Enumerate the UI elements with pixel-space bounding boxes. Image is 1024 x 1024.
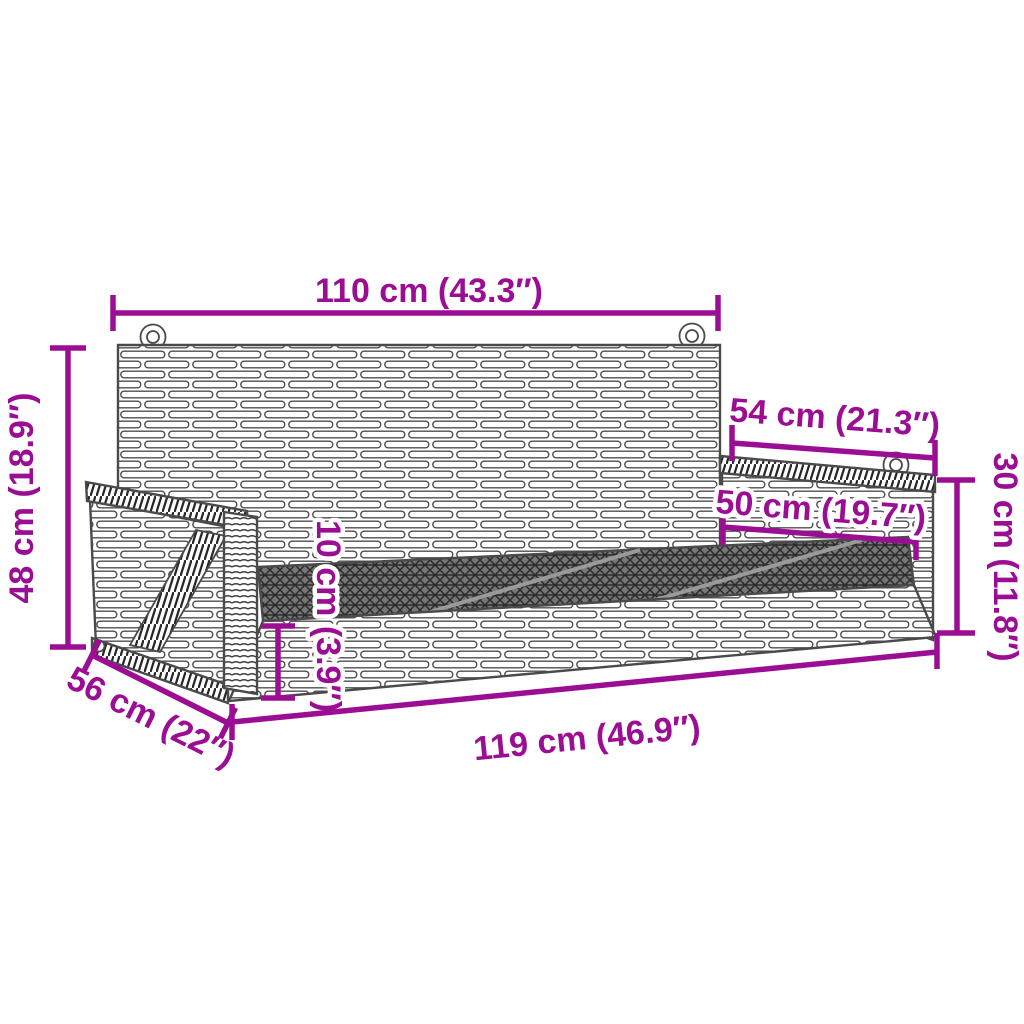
dimension-top-width: 110 cm (43.3″) <box>113 272 718 331</box>
dimension-label-back-height: 48 cm (18.9″) <box>3 393 41 604</box>
dimension-line <box>50 348 86 647</box>
dimension-back-height: 48 cm (18.9″) <box>3 348 86 647</box>
left-armrest-front-post <box>224 512 257 694</box>
dimension-label-armrest-height: 30 cm (11.8″) <box>986 452 1024 661</box>
dimension-label-top-width: 110 cm (43.3″) <box>315 272 543 310</box>
dimension-label-seat-width: 119 cm (46.9″) <box>472 708 703 768</box>
dimension-label-arm-depth: 54 cm (21.3″) <box>728 391 941 444</box>
dimension-armrest-height: 30 cm (11.8″) <box>937 452 1024 661</box>
swing-bench-drawing: 110 cm (43.3″) 48 cm (18.9″) 54 cm (21.3… <box>0 0 1024 1024</box>
dimension-label-seat-thickness: 10 cm (3.9″) <box>309 520 347 712</box>
product-dimension-diagram: 110 cm (43.3″) 48 cm (18.9″) 54 cm (21.3… <box>0 0 1024 1024</box>
dimension-line <box>937 480 975 633</box>
left-armrest <box>86 482 257 703</box>
